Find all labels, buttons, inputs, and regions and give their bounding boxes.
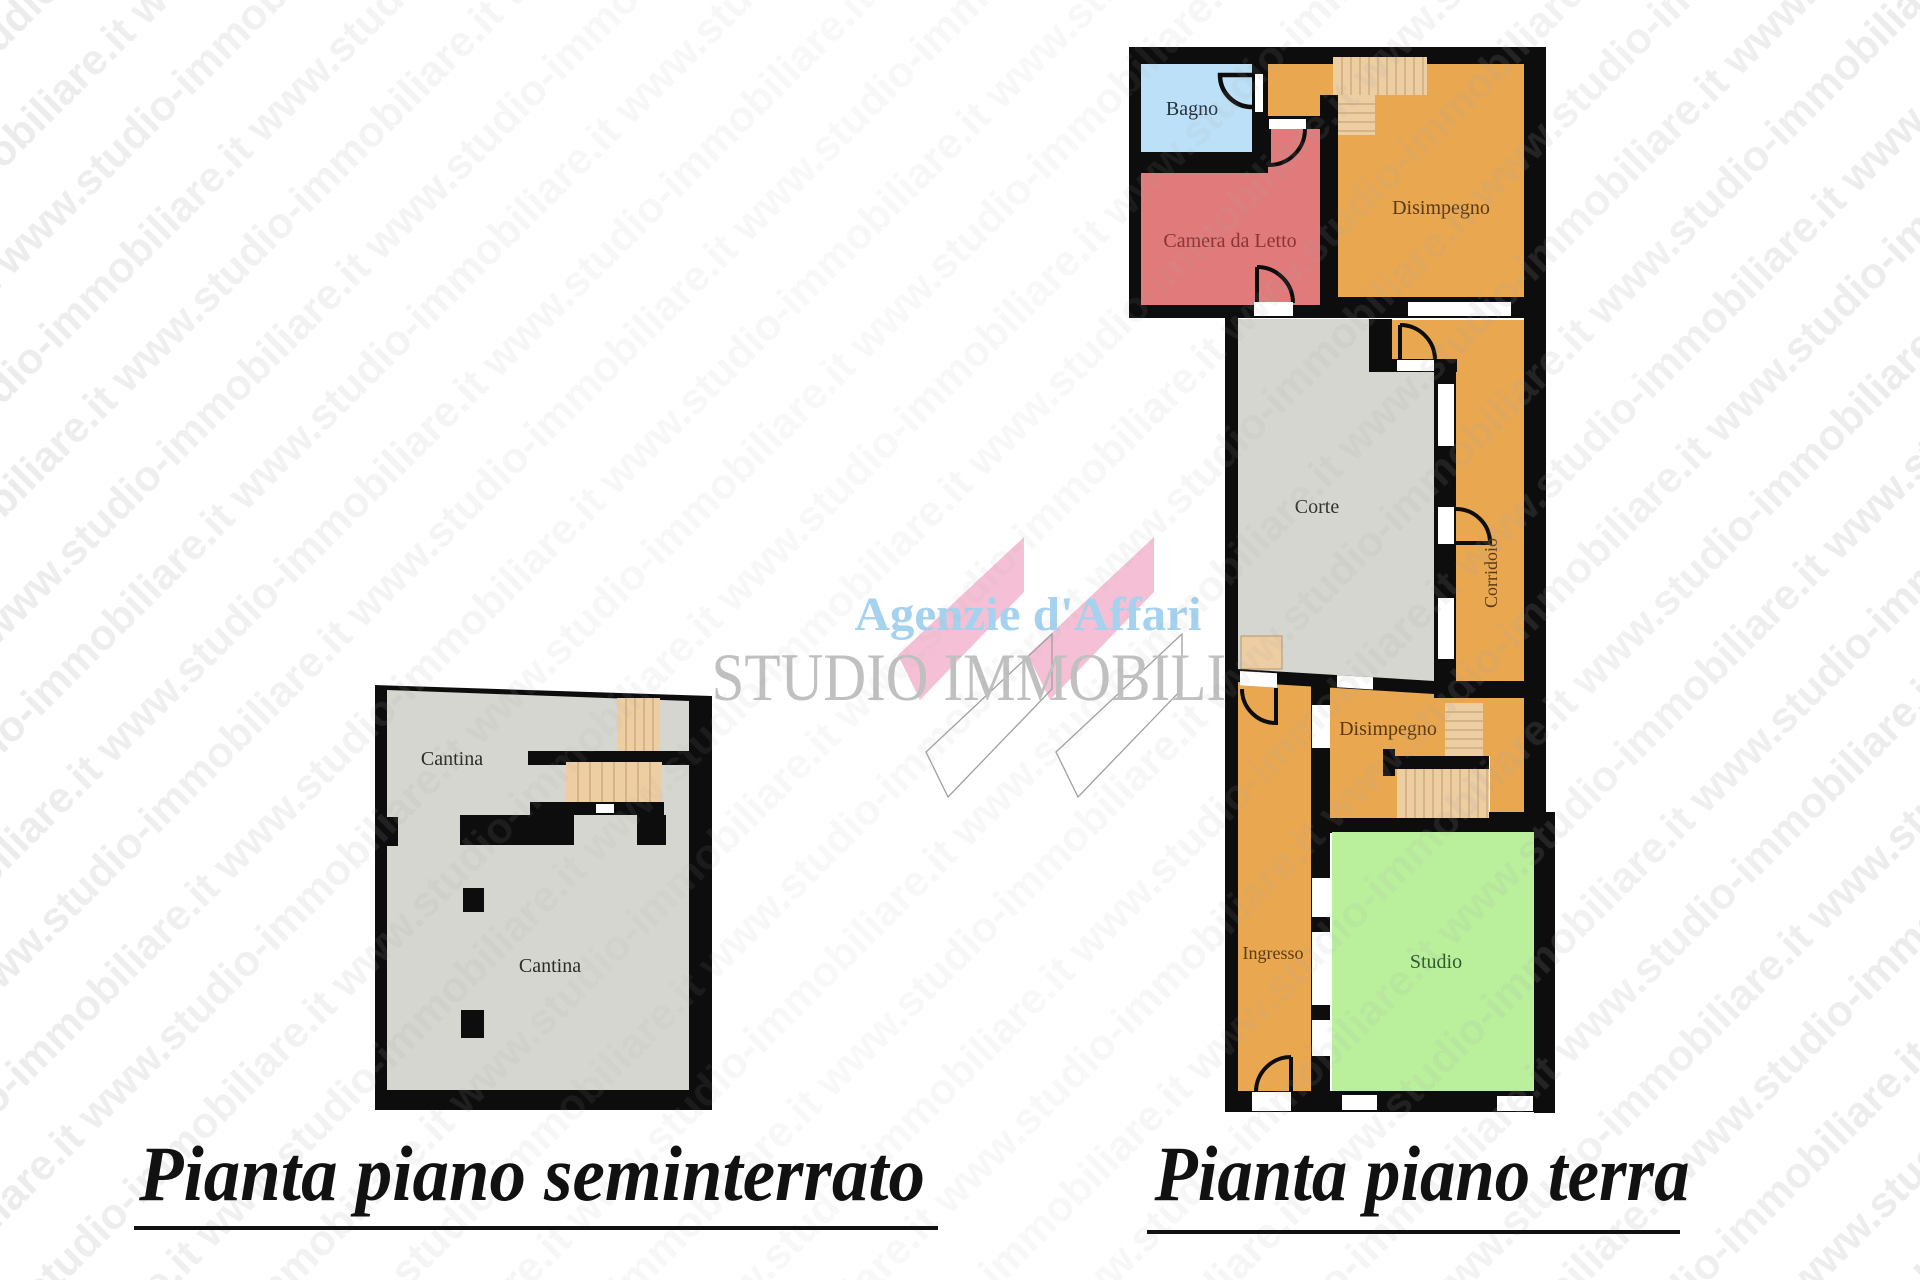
svg-text:Pianta piano terra: Pianta piano terra: [1154, 1130, 1690, 1217]
svg-text:Pianta piano seminterrato: Pianta piano seminterrato: [138, 1130, 925, 1217]
